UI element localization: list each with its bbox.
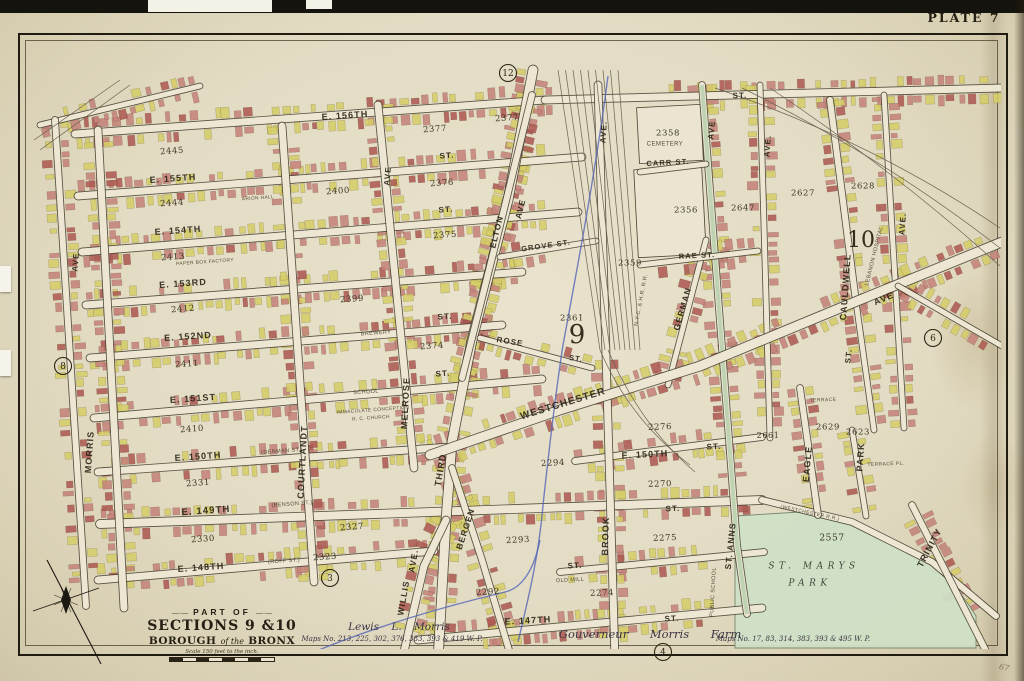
block-number: 2331 bbox=[186, 478, 211, 490]
street-label: RAE ST. bbox=[679, 250, 716, 261]
block-number: 2411 bbox=[175, 359, 200, 371]
surveyor-annotation: Lewis L. Morris bbox=[348, 621, 450, 633]
street-label: ST. bbox=[665, 504, 680, 514]
avenue-label: AVE. bbox=[897, 212, 908, 235]
scale-bar bbox=[169, 657, 275, 662]
title-borough-right: BRONX bbox=[248, 635, 295, 647]
avenue-label: BROOK bbox=[600, 516, 611, 555]
street-label: ST. bbox=[567, 561, 582, 571]
plate-ref-circle: 4 bbox=[655, 644, 672, 661]
title-scale-note: Scale 150 feet to the inch. bbox=[122, 649, 322, 655]
block-number: 2399 bbox=[340, 294, 365, 306]
atlas-page: E. 156THE. 155THE. 154THE. 153RDE. 152ND… bbox=[0, 0, 1024, 681]
title-part-of: PART OF bbox=[122, 607, 322, 617]
block-number: 2274 bbox=[590, 588, 614, 599]
street-label: ST. bbox=[706, 442, 721, 452]
block-number: 2375 bbox=[433, 230, 458, 242]
title-block: PART OF SECTIONS 9 &10 BOROUGH of the BR… bbox=[122, 607, 322, 662]
street-label: E. 151ST bbox=[169, 392, 216, 405]
farm-annotation: Gouverneur Morris Farm bbox=[559, 627, 741, 641]
block-number: 2647 bbox=[731, 204, 755, 214]
landmark-label: OLD MILL bbox=[556, 577, 585, 584]
handwritten-page-mark: 67 bbox=[998, 662, 1010, 673]
block-number: 2623 bbox=[846, 428, 870, 438]
plate-ref: 4 bbox=[660, 648, 666, 658]
park-label: ST. MARYS bbox=[768, 562, 859, 572]
street-label: ST. bbox=[437, 312, 452, 322]
block-number: 2270 bbox=[648, 479, 672, 490]
block-number: 2557 bbox=[819, 534, 844, 544]
landmark-label: CEMETERY bbox=[647, 142, 683, 148]
title-borough-left: BOROUGH bbox=[149, 635, 217, 647]
block-number: 2410 bbox=[180, 424, 205, 436]
plate-ref-circle: 12 bbox=[500, 65, 517, 82]
open-blocks-layer bbox=[634, 104, 707, 257]
street-label: E. 154TH bbox=[154, 224, 201, 237]
street-label: E. 153RD bbox=[159, 277, 207, 290]
block-number: 2276 bbox=[648, 422, 672, 433]
title-borough-mid: of the bbox=[221, 637, 244, 646]
avenue-label: AVE. bbox=[598, 120, 609, 143]
block-number: 2330 bbox=[191, 534, 216, 546]
block-number: 2377 bbox=[495, 113, 520, 125]
block-number: 2356 bbox=[674, 206, 698, 216]
plate-number: PLATE 7 bbox=[916, 10, 1012, 25]
compass-rose bbox=[33, 560, 101, 664]
street-label: ST. bbox=[732, 91, 747, 100]
maps-annotation-right: Maps No. 17, 83, 314, 383, 393 & 495 W. … bbox=[716, 635, 870, 643]
block-number: 2358 bbox=[656, 129, 680, 139]
street-label: ST. bbox=[435, 369, 450, 379]
block-number: 2374 bbox=[420, 341, 445, 353]
street-label: ST. bbox=[438, 205, 453, 215]
block-number: 2445 bbox=[160, 146, 185, 158]
section-number: 10 bbox=[847, 228, 875, 253]
maps-annotation-left: Maps No. 213, 225, 302, 376, 383, 393 & … bbox=[302, 635, 483, 643]
map-canvas: E. 156THE. 155THE. 154THE. 153RDE. 152ND… bbox=[0, 0, 1024, 681]
plate-ref: 12 bbox=[502, 69, 513, 79]
block-number: 2292 bbox=[476, 587, 501, 598]
street-label: ST. bbox=[439, 151, 454, 161]
block-number: 2359 bbox=[618, 259, 642, 269]
block-number: 2293 bbox=[506, 535, 531, 546]
block-number: 2444 bbox=[160, 198, 185, 210]
block-number: 2376 bbox=[430, 178, 455, 190]
block-number: 2327 bbox=[340, 522, 365, 534]
plate-ref-circle: 6 bbox=[925, 330, 942, 347]
block-number: 2629 bbox=[816, 423, 840, 433]
block-number: 2628 bbox=[851, 182, 875, 192]
landmark-label: TERRACE bbox=[810, 397, 837, 404]
avenue-label: AVE bbox=[70, 252, 80, 272]
labels-layer: E. 156THE. 155THE. 154THE. 153RDE. 152ND… bbox=[55, 65, 944, 661]
avenue-label: WILLIS bbox=[395, 580, 411, 617]
plate-ref: 3 bbox=[327, 574, 333, 584]
block-number: 2400 bbox=[326, 186, 351, 198]
avenue-label: ST. bbox=[843, 348, 854, 364]
avenue-label: MORRIS bbox=[83, 430, 96, 473]
plate-ref: 6 bbox=[930, 334, 936, 344]
block-number: 2275 bbox=[653, 533, 677, 544]
block-number: 2323 bbox=[313, 552, 338, 564]
section-number: 9 bbox=[569, 320, 586, 350]
park-label: PARK bbox=[787, 579, 831, 589]
avenue-label: AVE. bbox=[762, 134, 773, 157]
landmark-label: TERRACE PL. bbox=[867, 461, 904, 468]
landmark-label: R. C. CHURCH bbox=[352, 414, 390, 423]
block-number: 2294 bbox=[541, 458, 566, 469]
block-number: 2627 bbox=[791, 189, 815, 199]
block-number: 2661 bbox=[757, 431, 780, 440]
avenue-label: AVE bbox=[382, 166, 393, 186]
street-label: ST. bbox=[664, 614, 679, 624]
block-number: 2412 bbox=[171, 304, 196, 316]
avenue-label: PARK bbox=[854, 442, 866, 472]
title-borough: BOROUGH of the BRONX bbox=[122, 635, 322, 647]
title-sections: SECTIONS 9 &10 bbox=[122, 618, 322, 634]
block-number: 2377 bbox=[423, 124, 448, 136]
plate-ref: 8 bbox=[60, 362, 66, 372]
